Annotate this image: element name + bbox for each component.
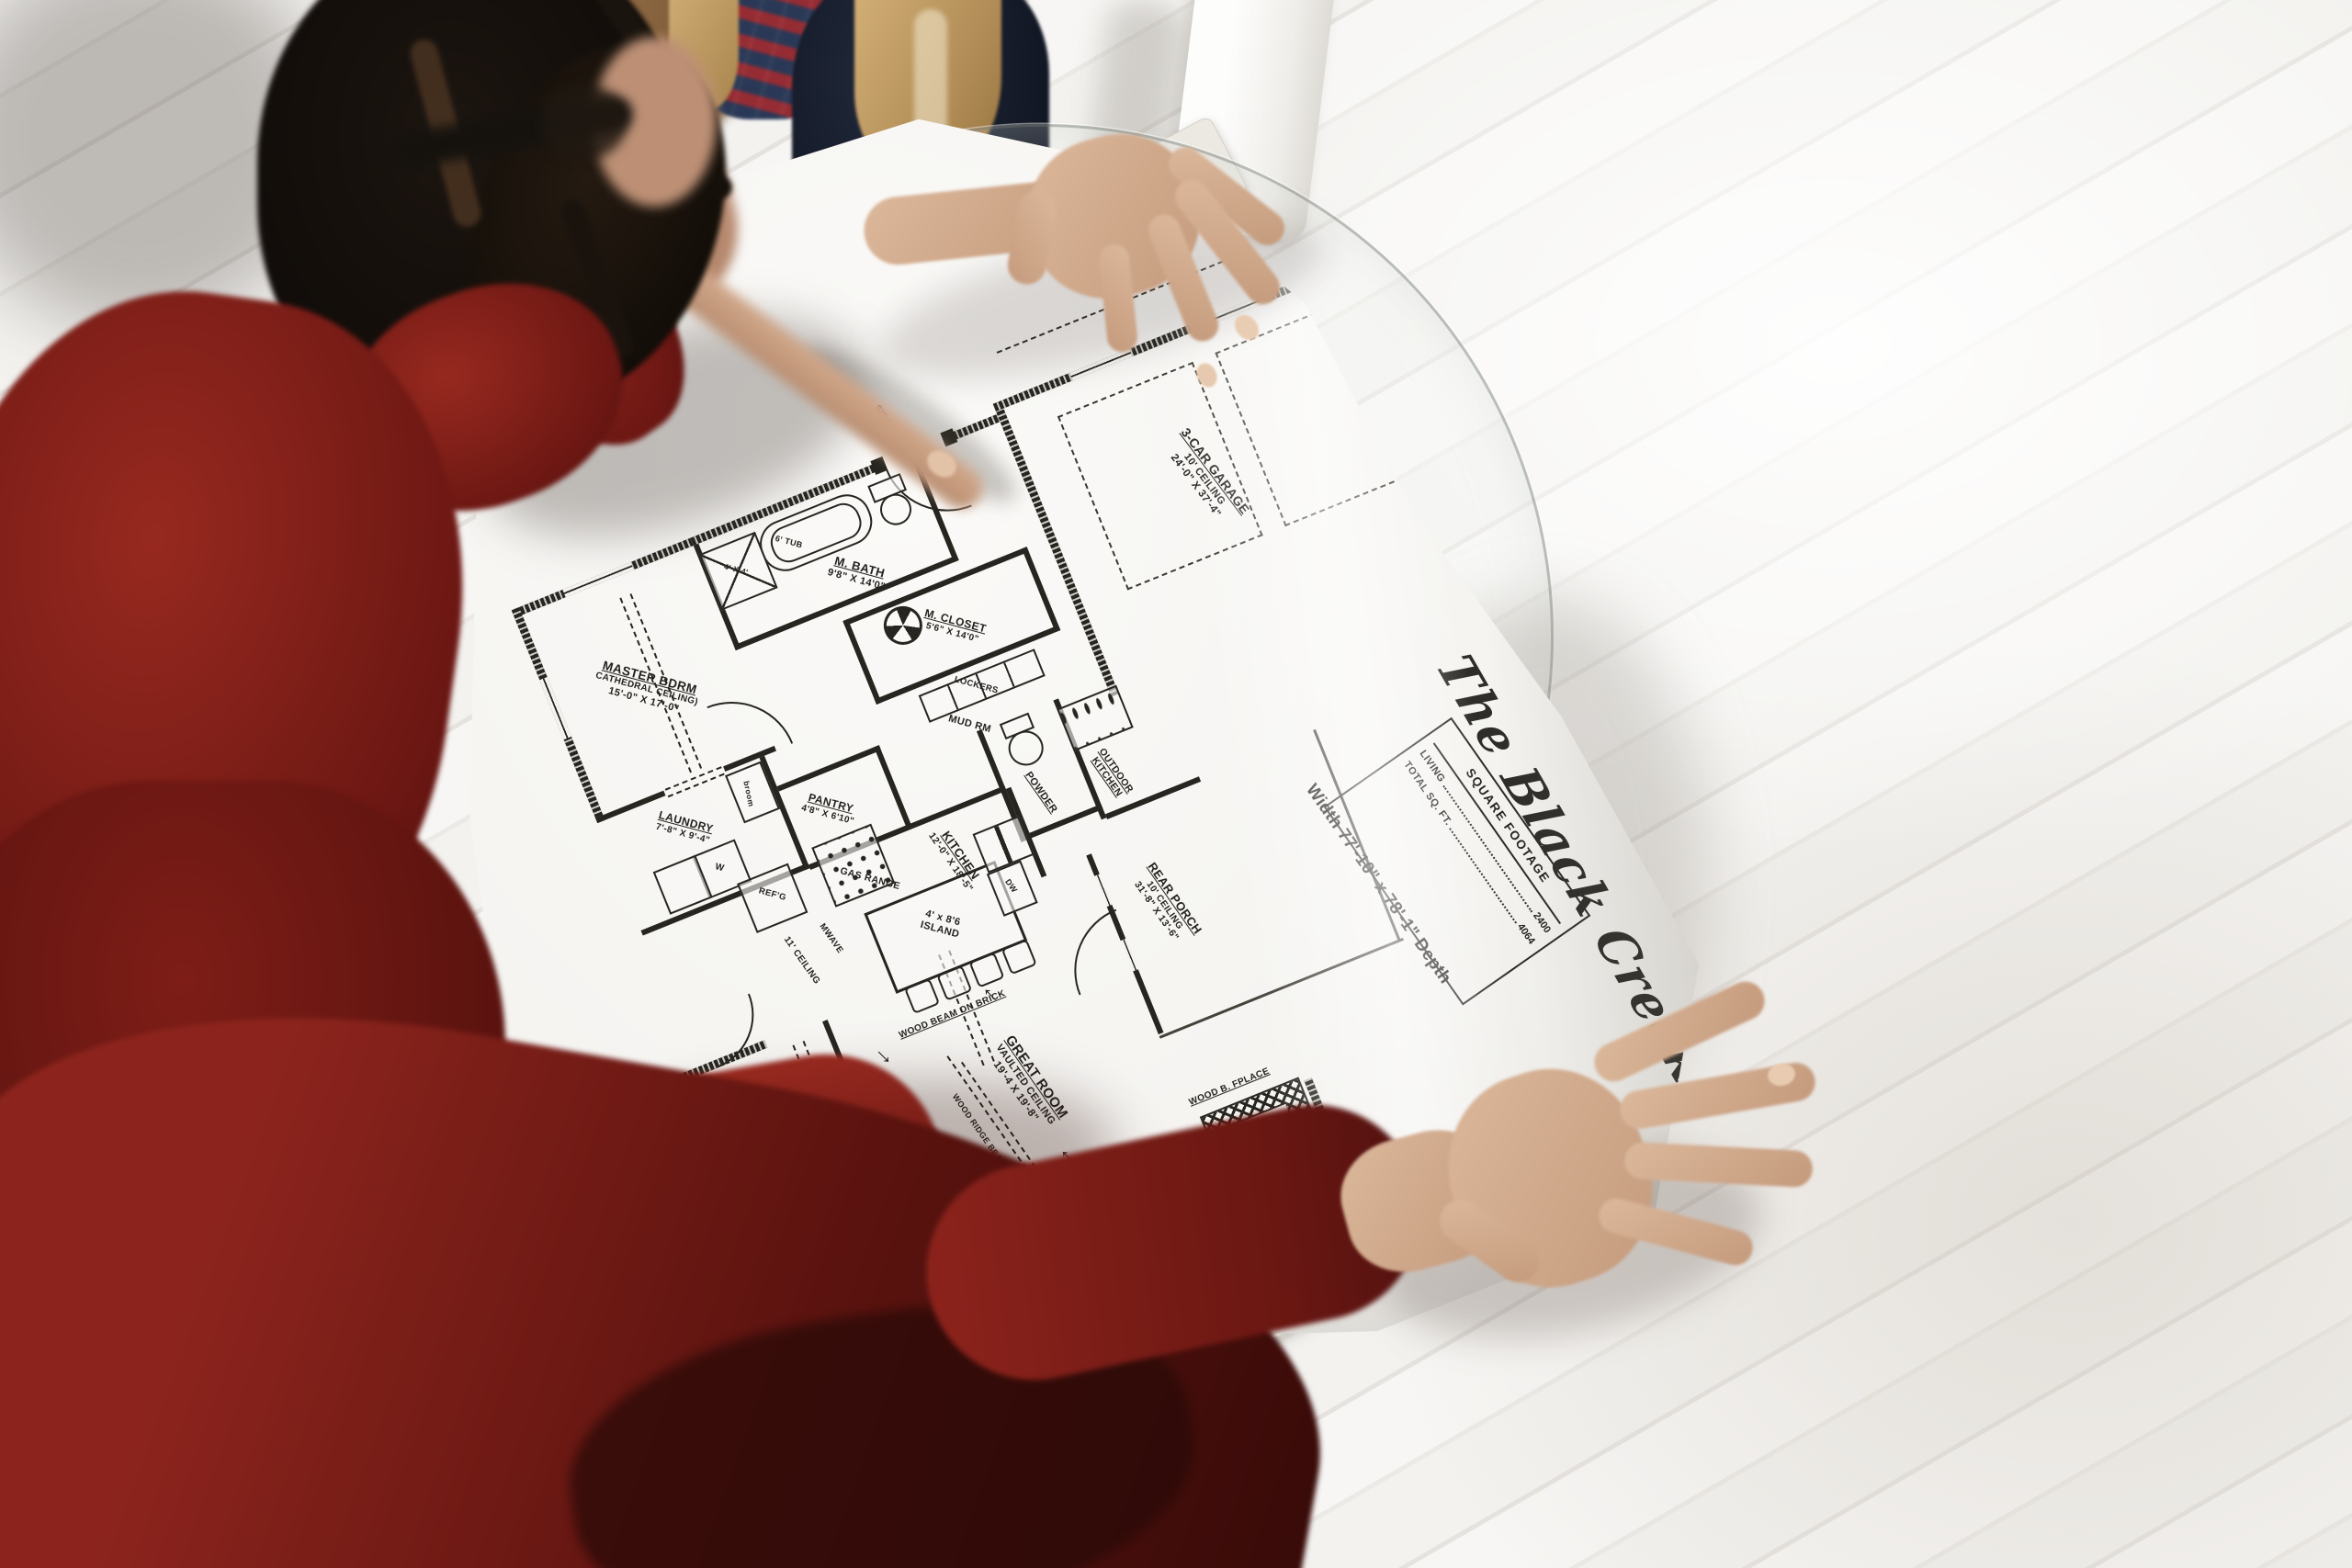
- vignette: [0, 0, 2352, 1568]
- photo-scene: 5'5" X DR: [0, 0, 2352, 1568]
